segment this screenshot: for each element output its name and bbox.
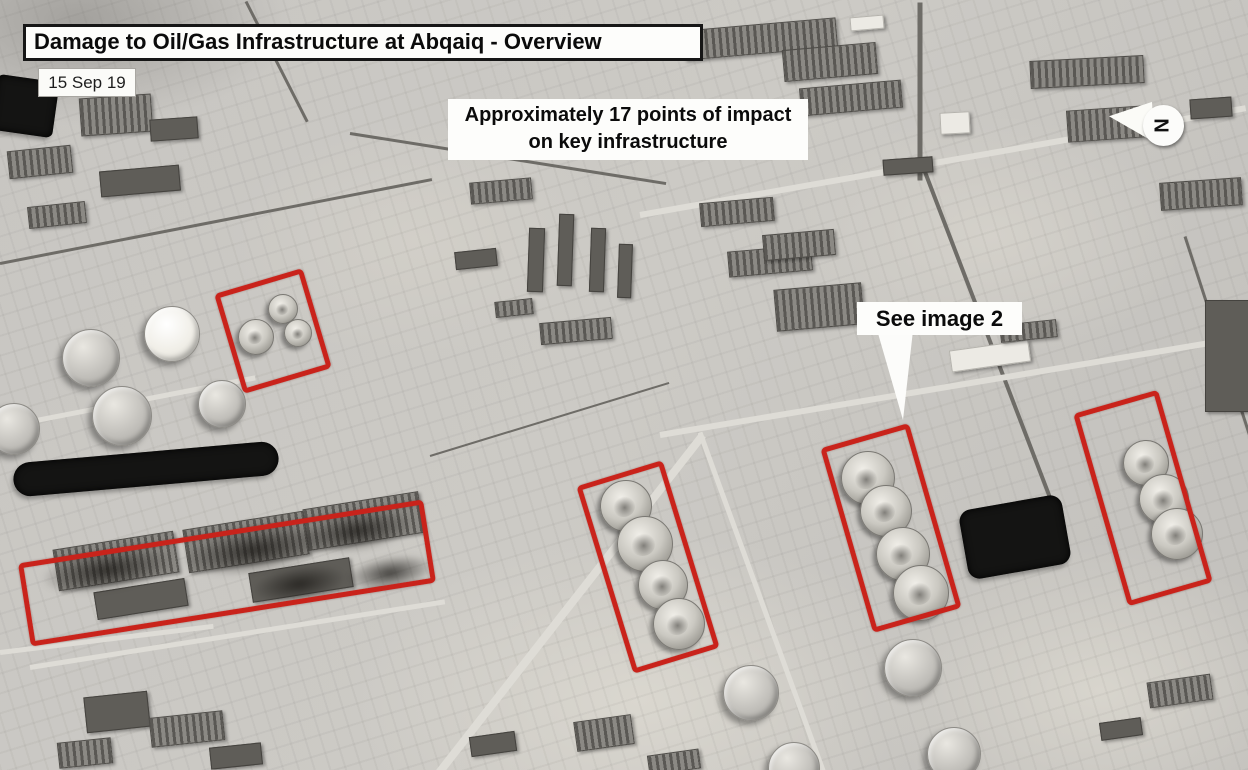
storage-tank	[144, 306, 200, 362]
building-block	[939, 111, 970, 135]
dark-pond	[958, 494, 1073, 581]
see-image-callout: See image 2	[857, 302, 1022, 335]
pipe-rack-line	[698, 432, 826, 770]
building-block	[149, 710, 226, 748]
building-block	[617, 244, 633, 298]
building-block	[799, 80, 903, 117]
building-block	[27, 201, 87, 229]
storage-tank	[927, 727, 981, 770]
building-block	[57, 737, 113, 769]
building-block	[1189, 97, 1232, 120]
compass-letter: N	[1152, 118, 1175, 132]
storage-tank	[62, 329, 120, 387]
impact-note-line2: on key infrastructure	[448, 129, 808, 156]
building-block	[149, 116, 198, 141]
impact-note-line1: Approximately 17 points of impact	[448, 102, 808, 129]
building-block	[1205, 300, 1248, 412]
pipe-rack-line	[430, 382, 670, 457]
building-block	[1099, 717, 1143, 741]
pipe-rack-line	[918, 3, 923, 181]
damage-marker-spheroid-tanks-east	[820, 423, 961, 633]
building-block	[99, 165, 181, 198]
storage-tank	[92, 386, 152, 446]
building-block	[573, 714, 635, 752]
building-block	[699, 197, 775, 227]
storage-tank	[884, 639, 942, 697]
building-block	[7, 145, 74, 180]
see-image-label: See image 2	[876, 306, 1003, 331]
pipe-rack-line	[245, 1, 309, 123]
building-block	[773, 282, 864, 332]
storage-tank	[723, 665, 779, 721]
building-block	[647, 748, 701, 770]
building-block	[949, 340, 1031, 373]
building-block	[589, 228, 606, 292]
building-block	[1159, 177, 1243, 211]
building-block	[1147, 674, 1214, 709]
building-block	[557, 214, 575, 286]
building-block	[79, 94, 153, 137]
building-block	[469, 177, 533, 204]
dark-pond	[12, 440, 280, 497]
building-block	[469, 731, 517, 757]
page-title: Damage to Oil/Gas Infrastructure at Abqa…	[34, 29, 602, 54]
compass-icon: N	[1143, 105, 1184, 146]
date-text: 15 Sep 19	[48, 73, 126, 92]
building-block	[782, 42, 878, 82]
date-label: 15 Sep 19	[38, 68, 136, 97]
storage-tank	[198, 380, 246, 428]
building-block	[83, 691, 150, 733]
building-block	[494, 298, 533, 318]
building-block	[209, 742, 263, 769]
building-block	[1029, 55, 1144, 89]
building-block	[849, 15, 884, 32]
damage-marker-processing-area-northwest	[214, 268, 332, 394]
briefing-graphic: Damage to Oil/Gas Infrastructure at Abqa…	[0, 0, 1248, 770]
building-block	[527, 228, 545, 293]
building-block	[454, 248, 498, 270]
damage-marker-spheroid-tanks-far-east	[1073, 390, 1213, 607]
storage-tank	[0, 403, 40, 455]
title-box: Damage to Oil/Gas Infrastructure at Abqa…	[23, 24, 703, 61]
damage-marker-stabilization-towers-row	[18, 499, 436, 646]
building-block	[539, 317, 613, 345]
impact-note: Approximately 17 points of impact on key…	[448, 99, 808, 160]
building-block	[762, 229, 836, 261]
